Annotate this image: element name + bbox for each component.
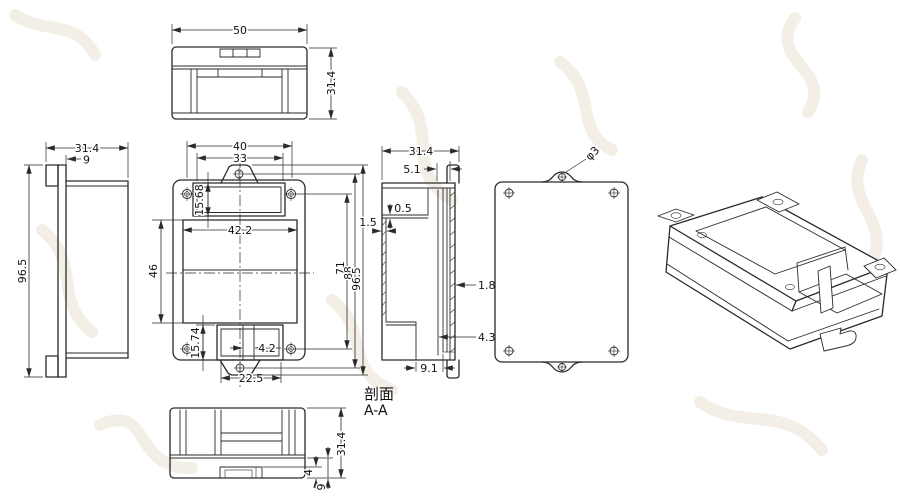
top-view: 50 31.4 — [172, 24, 338, 119]
dim-sec-width: 31.4 — [409, 145, 434, 158]
back-view-dimensions: φ3 — [566, 144, 602, 172]
bottom-view: 31.4 4 9 — [170, 408, 348, 491]
dim-sec-15: 1.5 — [359, 216, 377, 229]
drawing-svg: 50 31.4 31.4 9 — [0, 0, 900, 500]
dim-front-965: 96.5 — [351, 267, 363, 290]
dim-front-33: 33 — [233, 152, 247, 165]
dim-sec-18: 1.8 — [478, 279, 496, 292]
left-view-geometry — [46, 165, 128, 377]
dim-top-width: 50 — [233, 24, 247, 37]
back-view: φ3 — [495, 144, 628, 372]
section-caption-line1: 剖面 — [364, 385, 394, 403]
dim-bottom-4: 4 — [302, 469, 315, 476]
left-side-view: 31.4 9 96.5 — [16, 142, 128, 377]
section-caption: 剖面 A-A — [364, 385, 394, 419]
dim-left-height: 96.5 — [16, 259, 29, 284]
top-view-geometry — [172, 47, 307, 119]
dim-sec-51: 5.1 — [403, 163, 421, 176]
ear-bottom-section — [447, 360, 459, 378]
front-view-dimensions: 40 33 15.68 42.2 46 15.74 4.2 22 — [147, 140, 368, 385]
mount-ear-top — [46, 165, 58, 186]
dim-top-height: 31.4 — [325, 71, 338, 96]
dim-front-inner-w: 42.2 — [228, 224, 253, 237]
isometric-view — [658, 192, 896, 351]
left-view-dimensions: 31.4 9 96.5 — [16, 142, 128, 377]
rib-ladder — [443, 192, 455, 352]
dim-front-inner-h: 46 — [147, 264, 160, 278]
front-view: 40 33 15.68 42.2 46 15.74 4.2 22 — [147, 140, 368, 387]
corner-holes — [503, 187, 620, 357]
back-view-geometry — [495, 172, 628, 372]
dim-sec-43: 4.3 — [478, 331, 496, 344]
top-tab — [220, 49, 260, 57]
dim-front-recess-h: 15.68 — [193, 184, 206, 216]
dim-front-brecess-h: 15.74 — [189, 327, 202, 359]
dim-bottom-height: 31.4 — [335, 432, 348, 457]
dim-sec-05: 0.5 — [394, 202, 412, 215]
top-recess — [193, 183, 285, 216]
dim-left-ear: 9 — [83, 154, 90, 167]
dim-front-slot: 4.2 — [258, 342, 276, 355]
ear-top-section — [447, 165, 459, 183]
engineering-drawing-canvas: 50 31.4 31.4 9 — [0, 0, 900, 500]
dim-front-bottom-w: 22.5 — [239, 372, 264, 385]
dim-bottom-9: 9 — [315, 484, 328, 491]
mount-ear-bottom — [46, 356, 58, 377]
dim-sec-91: 9.1 — [420, 362, 438, 375]
section-caption-line2: A-A — [364, 403, 388, 419]
